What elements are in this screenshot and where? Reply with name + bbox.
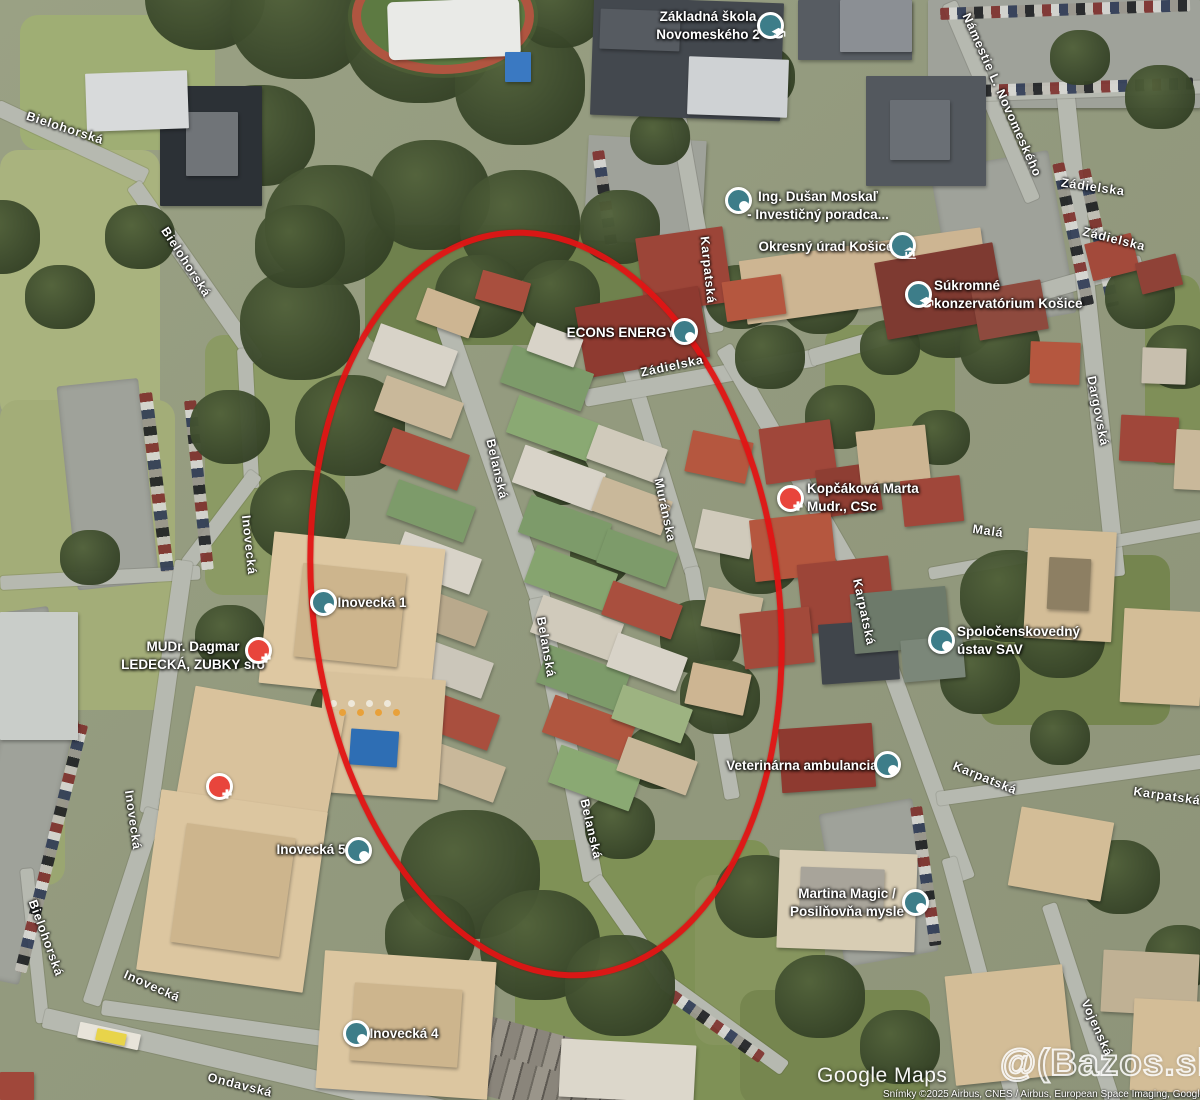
poi-marker-medical-marker-medical-icon[interactable] [206,773,233,800]
poi-label-inovecka-1[interactable]: Inovecká 1 [337,594,406,612]
tree-canopy [1050,30,1110,85]
poi-marker-mudr-ledecka-medical-icon[interactable] [245,637,272,664]
poi-marker-ustav-sav-pin-icon[interactable] [928,627,955,654]
poi-label-zakladna-skola[interactable]: Základná školaNovomeského 2 [656,8,760,44]
map-attribution: Snímky ©2025 Airbus, CNES / Airbus, Euro… [883,1089,1200,1100]
poi-label-inovecka-4[interactable]: Inovecká 4 [369,1025,438,1043]
poi-marker-econs-energy-pin-icon[interactable] [671,318,698,345]
street-label: Karpatská [1133,784,1200,807]
road [1056,88,1125,577]
building [1141,347,1186,385]
marker-tail [880,775,894,789]
tree-canopy [735,325,805,389]
poi-label-veterinarna[interactable]: Veterinárna ambulancia [726,757,878,775]
building [1119,415,1179,464]
building [85,70,189,132]
street-label: Malá [972,522,1005,540]
building [890,100,950,160]
google-maps-logo: Google Maps [817,1064,947,1088]
building [186,112,238,176]
poi-label-okresny-urad[interactable]: Okresný úrad Košice [758,238,893,256]
building [1173,429,1200,491]
tree-canopy [630,110,690,165]
building [1029,341,1080,385]
bazos-watermark: @(Bazos.sk [1000,1042,1200,1084]
poi-label-kopcakova[interactable]: Kopčáková MartaMudr., CSc [807,480,919,516]
tree-canopy [1125,65,1195,129]
building [0,1072,34,1100]
poi-marker-martina-magic-pin-icon[interactable] [902,889,929,916]
tree-canopy [775,955,865,1038]
building [687,56,789,117]
poi-marker-konzervatorium-school-icon[interactable] [905,281,932,308]
building [559,1039,697,1100]
poi-label-dusan-moskal[interactable]: Ing. Dušan Moskaľ- Investičný poradca... [747,188,889,224]
building [0,612,78,740]
building [387,0,521,60]
tree-canopy [1030,710,1090,765]
poi-label-inovecka-5[interactable]: Inovecká 5 [276,841,345,859]
building [722,274,787,322]
street-label: Bielohorská [158,224,214,299]
poi-marker-okresny-urad-civic-icon[interactable] [889,232,916,259]
poi-label-martina-magic[interactable]: Martina Magic /Posilňovňa mysle [790,885,904,921]
poi-label-econs-energy[interactable]: ECONS ENERGY [567,324,676,342]
building [505,52,531,82]
marker-tail [351,861,365,875]
poi-marker-dusan-moskal-pin-icon[interactable] [725,187,752,214]
tree-canopy [60,530,120,585]
poi-marker-inovecka-4-pin-icon[interactable] [343,1020,370,1047]
building [855,424,930,485]
poi-marker-kopcakova-medical-icon[interactable] [777,485,804,512]
building [840,0,912,52]
building [1008,806,1114,901]
tree-canopy [190,390,270,464]
poi-marker-inovecka-5-pin-icon[interactable] [345,837,372,864]
satellite-map[interactable]: BielohorskáBielohorskáBielohorskáInoveck… [0,0,1200,1100]
tree-canopy [25,265,95,329]
tree-canopy [255,205,345,288]
poi-label-mudr-ledecka[interactable]: MUDr. DagmarLEDECKÁ, ZUBKY sro [121,638,265,674]
poi-marker-veterinarna-pin-icon[interactable] [874,751,901,778]
poi-label-konzervatorium[interactable]: Súkromnékonzervatórium Košice [934,277,1083,313]
poi-marker-inovecka-1-pin-icon[interactable] [310,589,337,616]
building [1120,608,1200,706]
poi-label-ustav-sav[interactable]: Spoločenskovednýústav SAV [957,623,1080,659]
building [1047,557,1092,611]
marker-tail [731,211,745,225]
poi-marker-zakladna-skola-school-icon[interactable] [757,12,784,39]
